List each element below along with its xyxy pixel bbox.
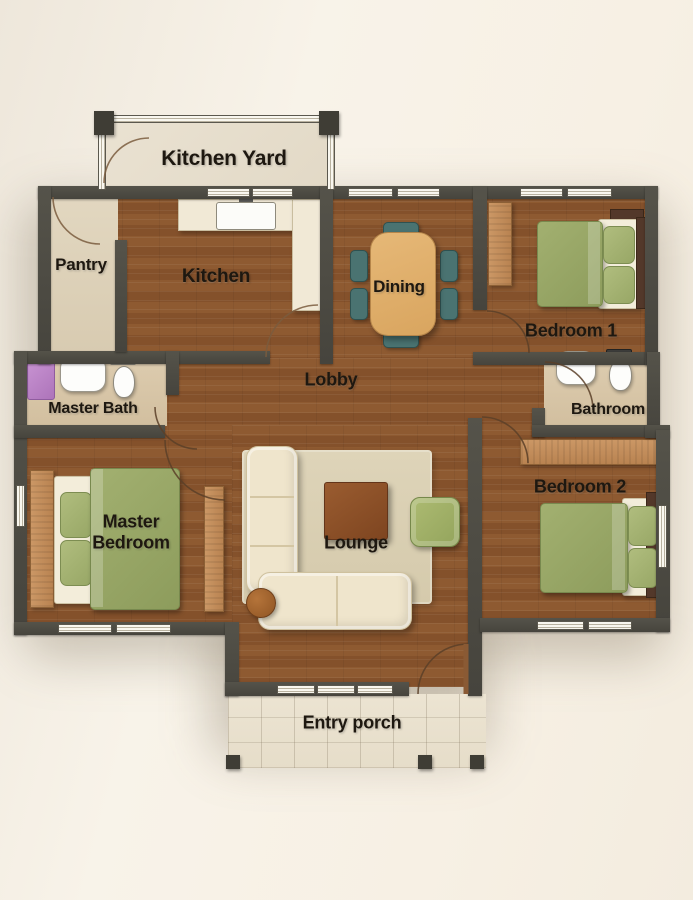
label-lobby: Lobby: [305, 370, 358, 391]
window: [537, 621, 584, 630]
dining-chair-left-2: [350, 288, 368, 320]
wall-segment: [14, 425, 165, 438]
kitchen-sink: [216, 202, 276, 230]
wall-segment: [645, 186, 658, 365]
floor-plan-canvas: Kitchen Yard Pantry Kitchen Dining Bedro…: [0, 0, 693, 900]
lounge-side-table: [246, 588, 276, 618]
bedroom1-pillow-2: [603, 266, 635, 304]
bedroom2-closet: [520, 439, 660, 465]
bedroom2-bed-fold: [612, 504, 625, 590]
kitchen-yard-wall: [100, 115, 333, 123]
porch-post: [226, 755, 240, 769]
window: [520, 188, 563, 197]
sofa-seam: [250, 496, 294, 498]
label-bedroom2: Bedroom 2: [534, 477, 626, 498]
kitchen-counter-right: [292, 199, 322, 311]
window: [317, 685, 355, 694]
wall-segment: [38, 186, 51, 364]
lounge-sofa-horizontal: [258, 572, 412, 630]
bedroom1-bed-fold: [588, 222, 600, 304]
master-bath-shower: [27, 360, 55, 400]
corner-post: [319, 111, 339, 135]
wall-segment: [115, 240, 127, 352]
dining-chair-right-1: [440, 250, 458, 282]
sofa-seam: [336, 576, 338, 626]
label-lounge: Lounge: [324, 533, 388, 554]
bedroom1-closet: [488, 202, 512, 286]
window: [588, 621, 632, 630]
label-master-bedroom: Master Bedroom: [76, 511, 186, 552]
label-kitchen-yard: Kitchen Yard: [161, 147, 287, 171]
label-bedroom1: Bedroom 1: [525, 321, 617, 342]
wall-segment: [166, 351, 179, 395]
window: [357, 685, 393, 694]
sofa-seam: [250, 545, 294, 547]
porch-post: [418, 755, 432, 769]
master-bedroom-headboard: [30, 470, 54, 608]
window: [658, 505, 667, 568]
wall-segment: [532, 425, 660, 437]
lounge-coffee-table: [324, 482, 388, 540]
porch-post: [470, 755, 484, 769]
label-dining: Dining: [373, 277, 425, 297]
master-bedroom-wardrobe: [204, 486, 224, 612]
label-entry-porch: Entry porch: [303, 713, 402, 734]
wall-segment: [320, 186, 333, 364]
bedroom1-pillow-1: [603, 226, 635, 264]
wall-segment: [473, 186, 487, 310]
corner-post: [94, 111, 114, 135]
dining-chair-left-1: [350, 250, 368, 282]
window: [252, 188, 293, 197]
label-master-bath: Master Bath: [48, 400, 137, 418]
wall-segment: [14, 351, 270, 364]
window: [58, 624, 112, 633]
window: [567, 188, 612, 197]
bedroom2-pillow-2: [628, 548, 658, 588]
window: [207, 188, 250, 197]
window: [116, 624, 171, 633]
master-bath-toilet-bowl: [113, 366, 135, 398]
dining-chair-right-2: [440, 288, 458, 320]
window: [277, 685, 315, 694]
label-bathroom: Bathroom: [571, 401, 645, 419]
lounge-armchair: [410, 497, 460, 547]
wall-segment: [468, 418, 482, 696]
window: [16, 485, 25, 527]
wall-segment: [473, 352, 658, 365]
bedroom2-pillow-1: [628, 506, 658, 546]
label-pantry: Pantry: [55, 255, 107, 275]
window: [348, 188, 393, 197]
window: [397, 188, 440, 197]
label-kitchen: Kitchen: [182, 266, 250, 288]
